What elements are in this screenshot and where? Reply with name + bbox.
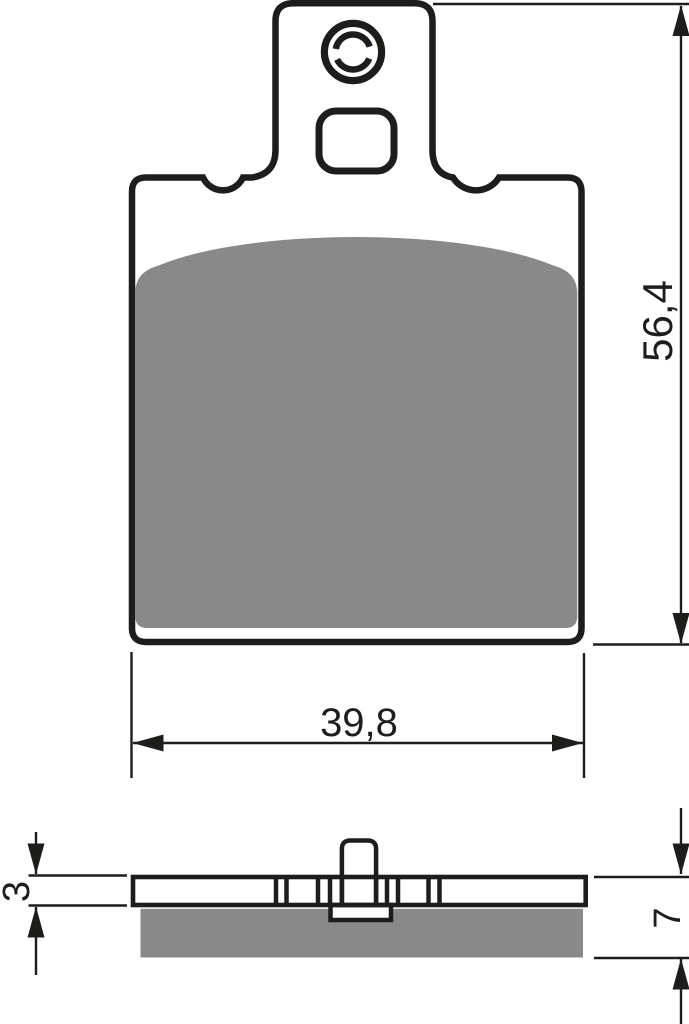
svg-text:56,4: 56,4 (634, 280, 681, 362)
svg-text:3: 3 (0, 881, 38, 902)
svg-text:7: 7 (647, 907, 689, 928)
svg-text:39,8: 39,8 (320, 701, 398, 745)
